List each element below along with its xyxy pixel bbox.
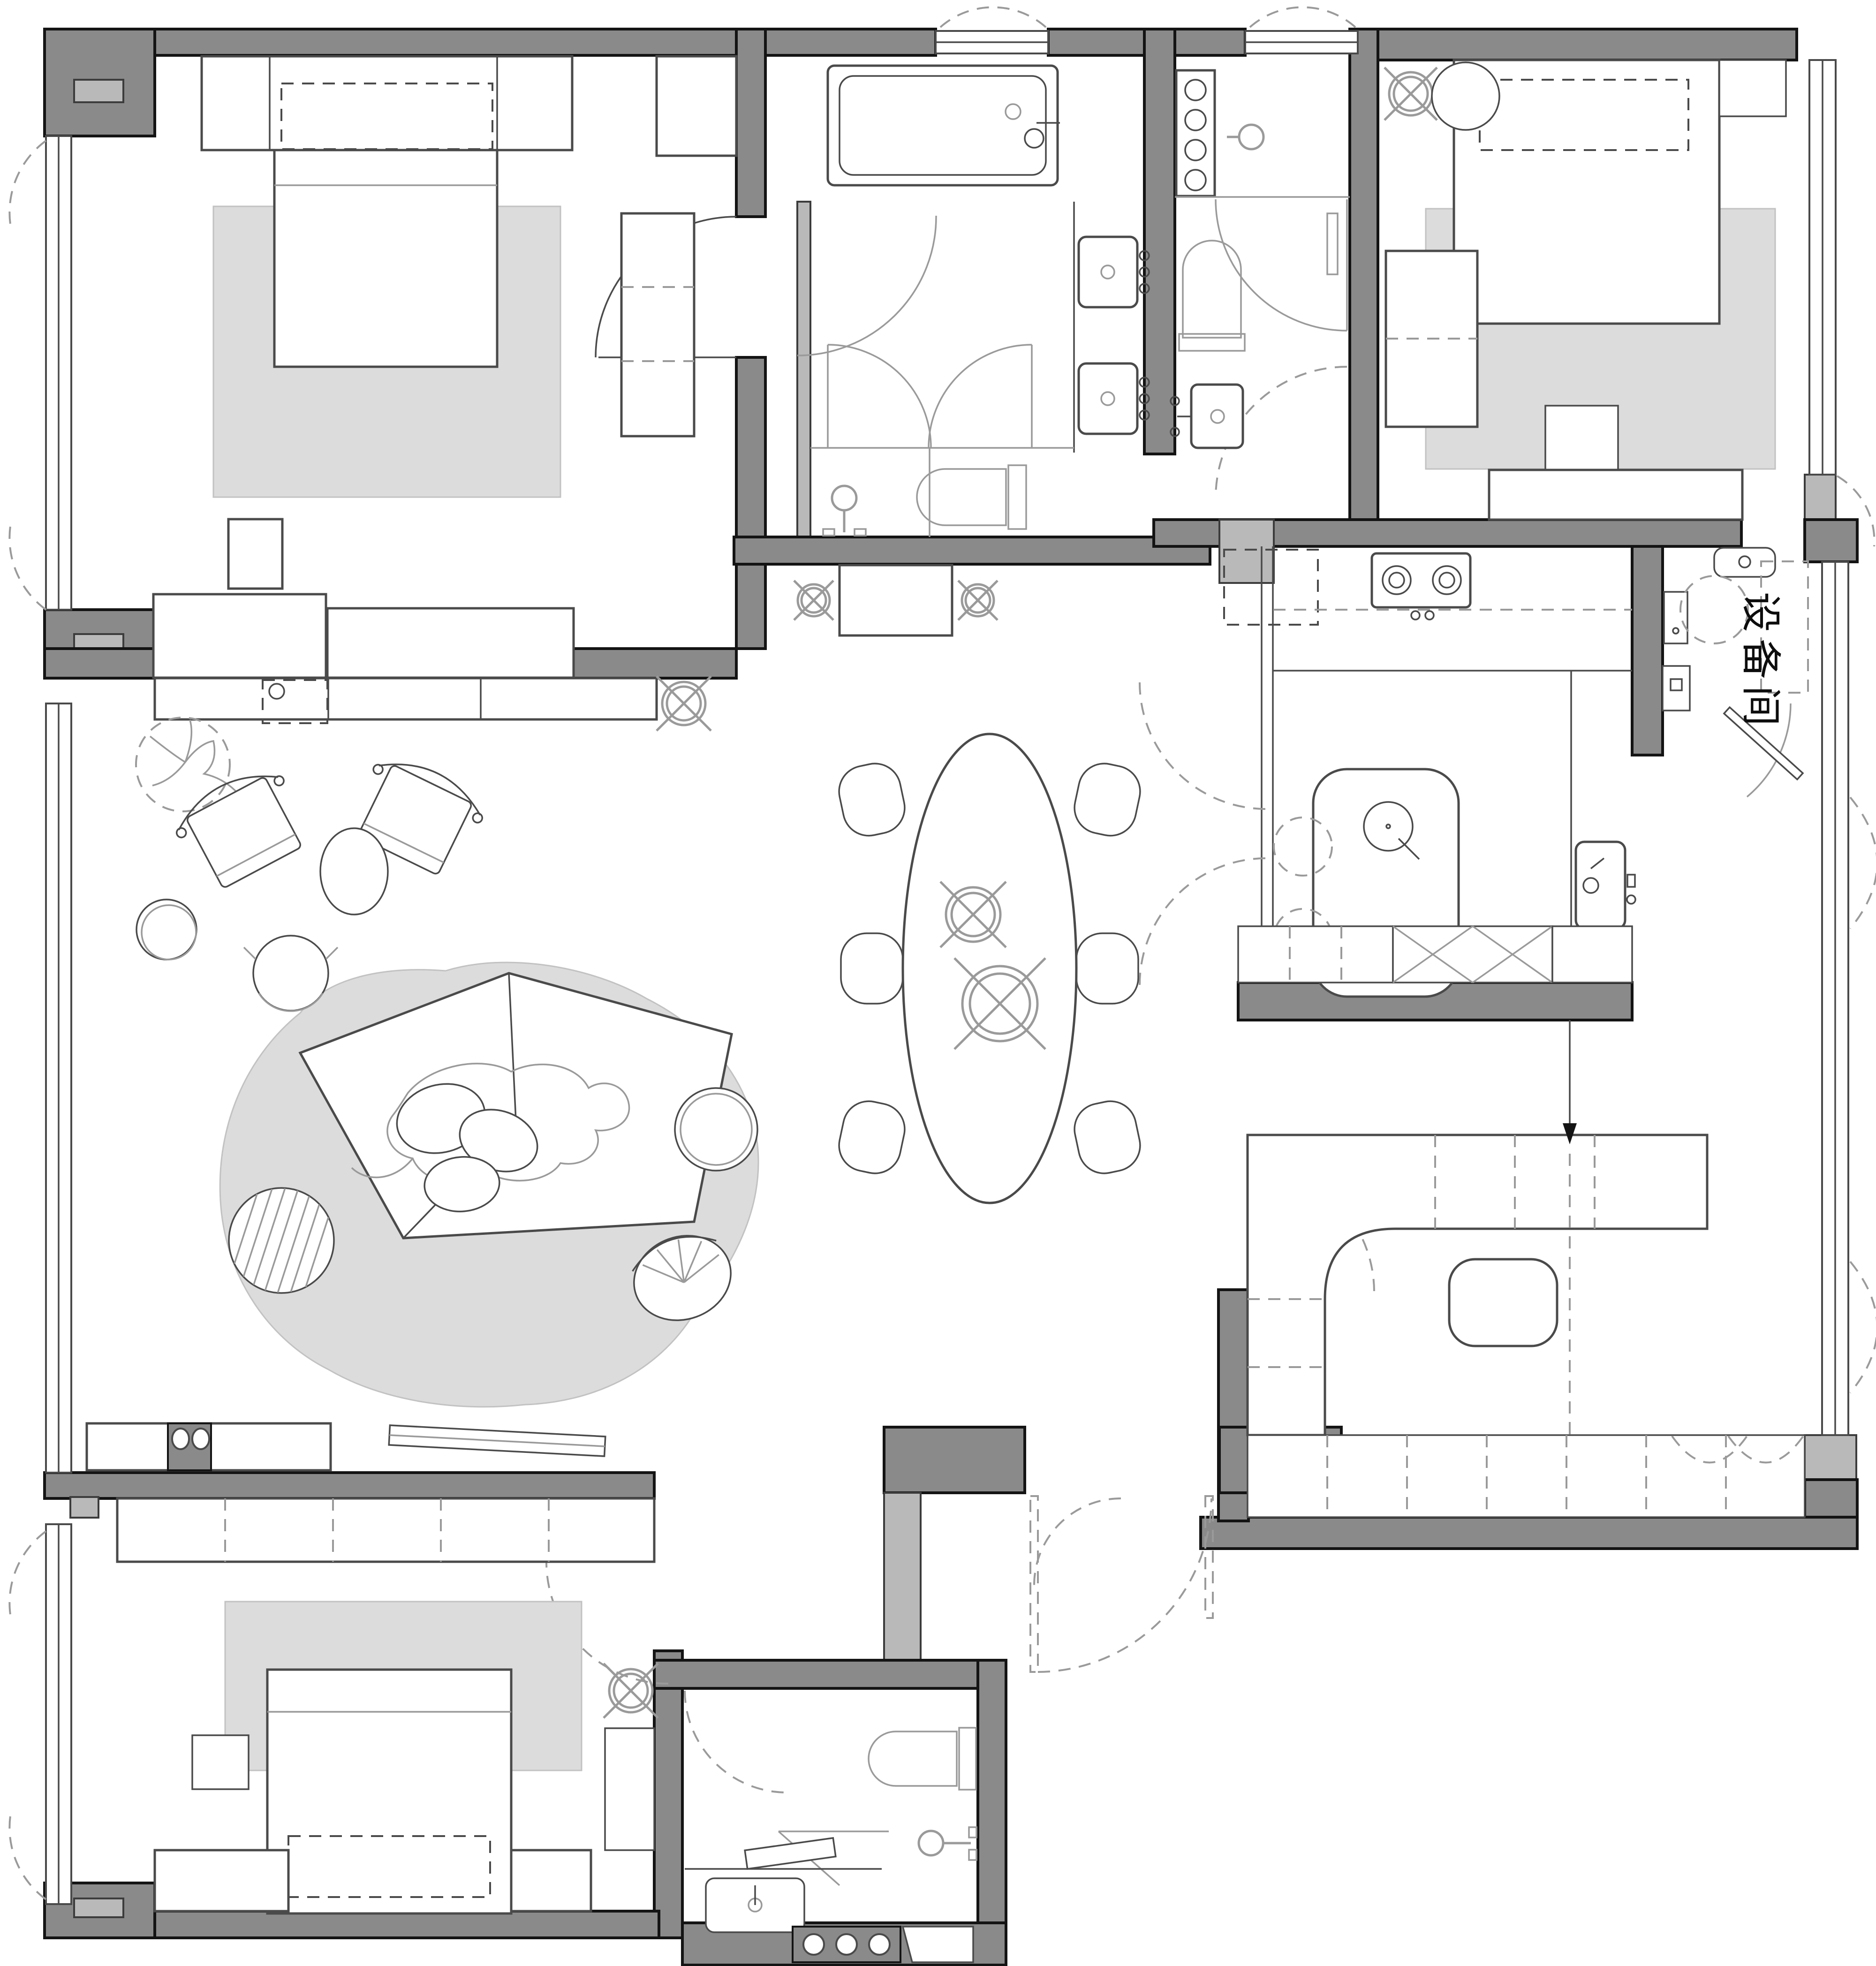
room-bathroom-3 xyxy=(685,1728,976,1962)
hamper-bath3 xyxy=(903,1927,973,1962)
console-table xyxy=(840,565,952,635)
table-bedroom2 xyxy=(1432,62,1499,130)
nightstand-bedroom2 xyxy=(1719,60,1786,116)
sink-bath1-b xyxy=(1079,363,1137,434)
dining-chair-6 xyxy=(1070,1096,1145,1178)
room-dining xyxy=(834,734,1145,1203)
sill-tl xyxy=(74,80,123,102)
washer-bath3 xyxy=(793,1927,973,1962)
wall-top-left xyxy=(45,29,936,55)
room-bathroom-2 xyxy=(1171,70,1350,448)
nightstand-bedroom3 xyxy=(192,1735,249,1789)
wall-bath3-right xyxy=(978,1660,1006,1966)
room-living xyxy=(87,676,758,1470)
pouf xyxy=(675,1088,757,1171)
door-arc-entry-small xyxy=(1034,1498,1121,1585)
wall-top-right xyxy=(1358,29,1797,60)
shower-bath1 xyxy=(832,486,856,510)
study-cabinets xyxy=(1248,1435,1805,1517)
sink-bath3 xyxy=(685,1838,882,1932)
kitchen-lower-cabinets xyxy=(1238,926,1632,983)
shower-bath3 xyxy=(919,1827,976,1860)
door-arc-bath1-right xyxy=(929,345,1032,448)
nightstand-bedroom1 xyxy=(228,519,282,589)
room-equipment: 设备间 xyxy=(1663,548,1808,733)
pantry-x-cabinet xyxy=(1393,926,1552,983)
toilet-bath2 xyxy=(1183,241,1241,338)
armchair-a xyxy=(166,759,316,896)
wall-bath1-left-light xyxy=(797,202,810,537)
sink-bath1-a xyxy=(1079,237,1137,307)
door-jamb-entry-right xyxy=(1205,1496,1213,1618)
floor-plan: 设备间 xyxy=(0,0,1876,1966)
sill-right-upper xyxy=(1805,475,1836,520)
hall-console xyxy=(794,565,998,635)
cutting-board xyxy=(1364,802,1413,851)
study-table xyxy=(1449,1259,1557,1346)
sill-right-lower xyxy=(1805,1435,1856,1480)
room-study xyxy=(1248,1020,1805,1517)
door-arc-win-b1-a xyxy=(9,141,46,224)
floor-plan-page: 设备间 xyxy=(0,0,1876,1966)
wall-bottom-right-section xyxy=(1201,1517,1857,1549)
room-kitchen xyxy=(1224,550,1635,997)
door-arc-bath3 xyxy=(685,1691,787,1792)
cabinet-bedroom1 xyxy=(621,213,694,436)
wall-bath-bottom xyxy=(734,537,1210,564)
room-bedroom-2 xyxy=(1384,60,1786,520)
ceiling-light-bedroom3 xyxy=(604,1664,658,1718)
wall-bedroom3-top xyxy=(45,1473,654,1498)
door-arc-bath1 xyxy=(797,216,936,355)
toilet-bath3 xyxy=(869,1732,957,1786)
sill-bl xyxy=(74,1898,123,1917)
bench-low xyxy=(389,1425,605,1456)
bed-bedroom3 xyxy=(267,1670,511,1913)
dresser-bedroom1 xyxy=(153,594,326,678)
equipment-unit-a xyxy=(1664,592,1687,643)
side-table-oval xyxy=(320,828,388,915)
door-arc-exterior-right-b xyxy=(1850,1262,1876,1393)
sill-bedroom3-top xyxy=(70,1497,98,1518)
dining-chair-4 xyxy=(1070,759,1145,840)
wall-bath3-top xyxy=(654,1660,1006,1688)
door-arc-top-window1 xyxy=(940,7,1046,27)
bed-bedroom1 xyxy=(274,150,497,367)
door-arc-win-b1-b xyxy=(9,526,46,610)
dining-chair-1 xyxy=(834,759,909,840)
ceiling-light-hall-b xyxy=(958,581,998,620)
wall-entry-left xyxy=(884,1427,1025,1493)
wall-bedroom2-left xyxy=(1350,29,1378,522)
side-table-round xyxy=(136,900,197,960)
door-arc-win-b3-b xyxy=(9,1816,46,1899)
laundry-counter xyxy=(87,1423,331,1470)
wall-bath-divider xyxy=(1144,29,1175,454)
dresser-bedroom3-left xyxy=(155,1850,288,1911)
door-arc-exterior-right-a xyxy=(1850,797,1876,929)
dining-chair-5 xyxy=(1076,933,1138,1004)
chair-bedroom2 xyxy=(1545,406,1618,476)
kitchen-sink xyxy=(1576,842,1635,929)
wall-bedroom1-right-lower xyxy=(736,357,765,649)
ceiling-light-hall-a xyxy=(794,581,833,620)
wall-right-step xyxy=(1805,520,1857,562)
cabinet-bedroom3 xyxy=(605,1728,654,1850)
room-bedroom-1 xyxy=(153,56,736,678)
dining-chair-2 xyxy=(841,933,903,1004)
dining-chair-3 xyxy=(834,1096,909,1178)
dresser-bedroom3-right xyxy=(511,1850,591,1911)
sill-kitchen-top xyxy=(1219,520,1274,583)
room-bathroom-1 xyxy=(810,66,1149,537)
door-arc-win-b3-a xyxy=(9,1531,46,1615)
wall-bedroom3-right xyxy=(654,1651,682,1938)
ceiling-light-living xyxy=(657,676,711,731)
sideboard-living xyxy=(155,678,657,723)
door-arc-top-window2 xyxy=(1250,7,1355,27)
ceiling-light-bedroom2 xyxy=(1384,68,1437,120)
door-arc-kitchen-a xyxy=(1140,682,1266,809)
desk-bedroom2 xyxy=(1489,470,1742,520)
cabinet-low-bedroom1 xyxy=(327,608,574,678)
room-bedroom-3 xyxy=(117,1498,658,1913)
niche-bath2 xyxy=(1327,213,1338,274)
door-arc-bath1-left xyxy=(828,345,931,448)
equipment-unit-b xyxy=(1663,666,1690,711)
wall-bedroom1-right-upper xyxy=(736,29,765,217)
headboard-bedroom1 xyxy=(202,56,572,150)
sink-bath2 xyxy=(1191,385,1243,448)
shelf-bath2 xyxy=(1176,70,1215,196)
closet-bedroom1 xyxy=(657,56,736,156)
equipment-room-label: 设备间 xyxy=(1737,592,1784,733)
wall-corridor-light xyxy=(884,1493,921,1660)
wall-kitchen-right xyxy=(1632,546,1663,755)
wardrobe-bedroom3 xyxy=(117,1498,654,1562)
shower-head-bath2 xyxy=(1239,125,1263,149)
door-arc-entry xyxy=(1038,1498,1211,1672)
